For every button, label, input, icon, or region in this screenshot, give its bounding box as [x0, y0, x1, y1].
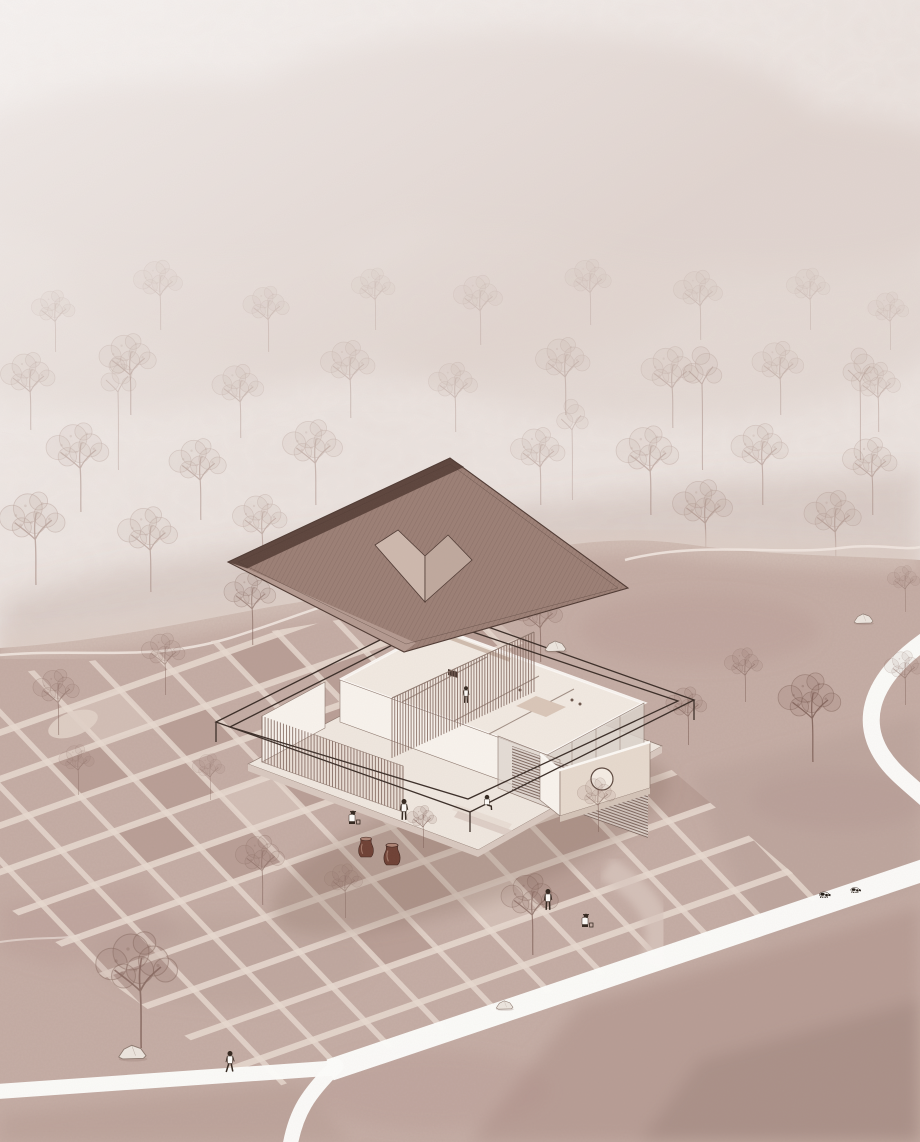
architectural-illustration [0, 0, 920, 1142]
scene-canvas [0, 0, 920, 1142]
paper-grain-overlay [0, 0, 920, 1142]
